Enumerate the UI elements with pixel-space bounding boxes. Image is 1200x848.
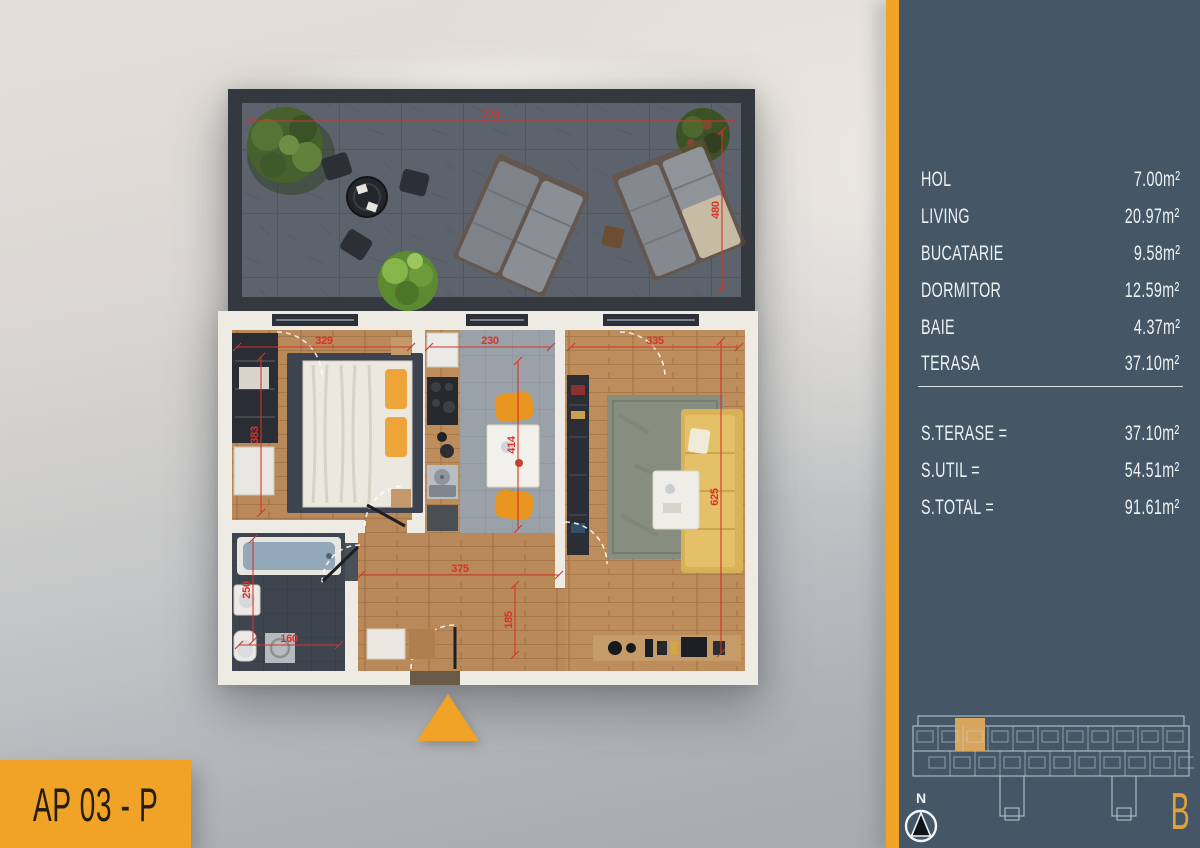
total-value: 37.10m² [1125, 422, 1180, 446]
building-letter: B [1155, 782, 1190, 842]
table-row: HOL7.00m² [921, 162, 1180, 199]
table-row: S.UTIL =54.51m² [921, 453, 1180, 490]
compass-n-label: N [916, 790, 926, 806]
room-area: 37.10m² [1125, 352, 1180, 376]
apartment [218, 311, 758, 685]
dimension-label: 230 [481, 335, 499, 347]
total-label: S.TERASE = [921, 422, 1007, 446]
total-label: S.TOTAL = [921, 496, 994, 520]
room-label: HOL [921, 168, 951, 192]
dimension-label: 250 [241, 581, 253, 599]
chair [494, 391, 535, 423]
total-label: S.UTIL = [921, 459, 980, 483]
sidebar-accent-stripe [886, 0, 899, 848]
wall-stub [555, 533, 565, 588]
coffee-table [653, 471, 699, 529]
side-table [601, 225, 625, 249]
dimension-label: 383 [249, 426, 261, 444]
hall-furniture [367, 629, 435, 659]
hob [427, 377, 458, 425]
dimension-label: 335 [646, 335, 664, 347]
room-label: TERASA [921, 352, 980, 376]
dimension-label: 160 [280, 633, 298, 645]
room-label: BUCATARIE [921, 242, 1004, 266]
room-label: LIVING [921, 205, 970, 229]
table-row: DORMITOR12.59m² [921, 272, 1180, 309]
room-area: 12.59m² [1125, 279, 1180, 303]
table-row: TERASA37.10m² [921, 346, 1180, 383]
table-row: BAIE4.37m² [921, 309, 1180, 346]
separator-line [918, 386, 1183, 387]
terrace [228, 89, 755, 311]
room-list: HOL7.00m²LIVING20.97m²BUCATARIE9.58m²DOR… [921, 162, 1180, 383]
floor-plan: 773480329230335383414625375185250160 [215, 85, 760, 690]
chair [494, 489, 535, 521]
keyplan-highlight [955, 718, 985, 751]
table-row: S.TERASE =37.10m² [921, 416, 1180, 453]
room-area: 20.97m² [1125, 205, 1180, 229]
apartment-label: AP 03 - P [0, 760, 191, 848]
building-letter-text: B [1171, 782, 1190, 842]
total-value: 91.61m² [1125, 496, 1180, 520]
plant [378, 251, 438, 311]
room-area: 9.58m² [1134, 242, 1180, 266]
info-sidebar: HOL7.00m²LIVING20.97m²BUCATARIE9.58m²DOR… [899, 0, 1200, 848]
dimension-label: 480 [710, 201, 722, 219]
entry-door [410, 671, 460, 685]
room-label: DORMITOR [921, 279, 1001, 303]
apartment-label-text: AP 03 - P [33, 777, 159, 832]
table-row: S.TOTAL =91.61m² [921, 490, 1180, 527]
island-table [487, 425, 539, 487]
room-area: 4.37m² [1134, 316, 1180, 340]
dimension-label: 185 [503, 611, 515, 629]
pillow [385, 417, 407, 457]
dimension-label: 625 [709, 488, 721, 506]
dimension-label: 329 [315, 335, 333, 347]
dimension-label: 414 [506, 435, 518, 454]
dimension-label: 375 [451, 563, 469, 575]
totals-list: S.TERASE =37.10m²S.UTIL =54.51m²S.TOTAL … [921, 416, 1180, 526]
pillow [385, 369, 407, 409]
compass-north-icon: N [901, 790, 941, 846]
entrance-arrow-icon [417, 694, 479, 741]
dimension-label: 773 [482, 109, 500, 121]
table-row: BUCATARIE9.58m² [921, 236, 1180, 273]
building-key-plan [908, 700, 1194, 845]
floor-plan-poster: 773480329230335383414625375185250160 AP … [0, 0, 1200, 848]
terrace-windows [272, 314, 699, 326]
total-value: 54.51m² [1125, 459, 1180, 483]
room-label: BAIE [921, 316, 955, 340]
table-row: LIVING20.97m² [921, 199, 1180, 236]
room-area: 7.00m² [1134, 168, 1180, 192]
